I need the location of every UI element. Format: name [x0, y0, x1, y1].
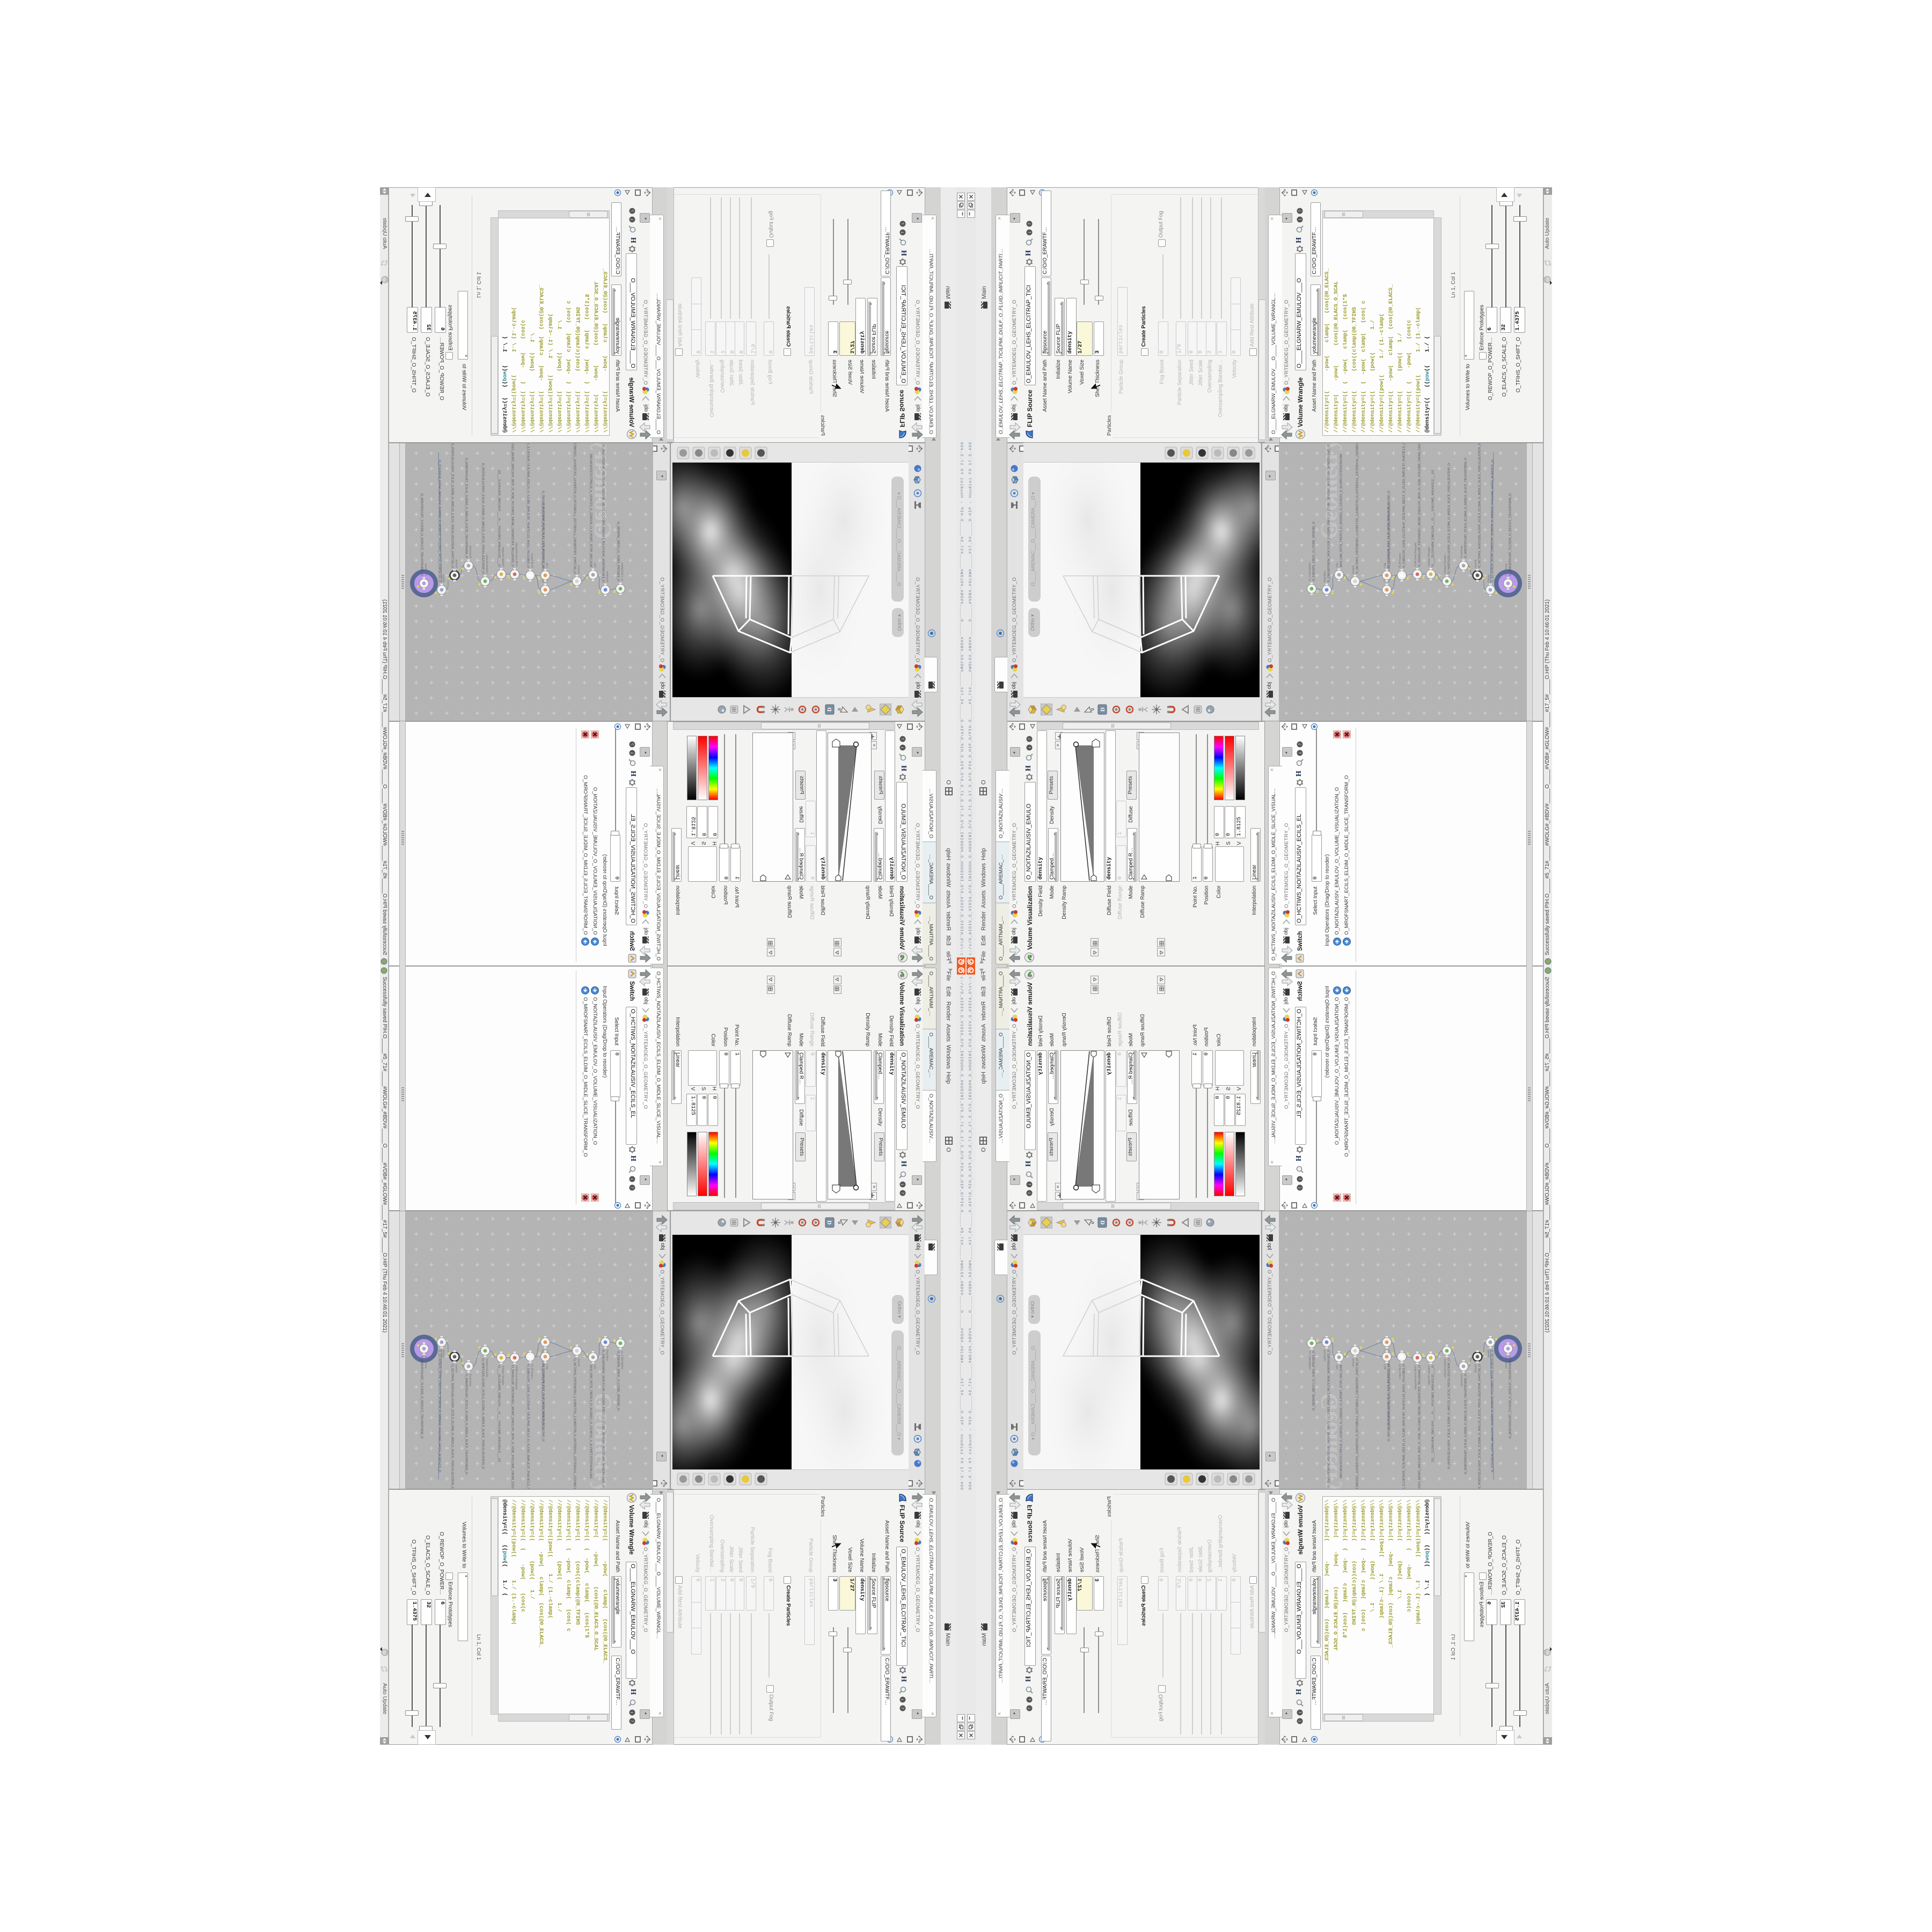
svg-text:O_EREHPS_EBUC_O_CUBE_SPHERE_O: O_EREHPS_EBUC_O_CUBE_SPHERE_O [617, 1351, 620, 1411]
svg-text:ao_CubeSphere: ao_CubeSphere [1308, 562, 1312, 581]
svg-text:?: ? [630, 1187, 634, 1189]
svg-text:O_HCTIWS_YRTEMOEG_LANRETXE_LAN: O_HCTIWS_YRTEMOEG_LANRETXE_LANRETNI_O_IN… [1356, 443, 1359, 574]
svg-text:O_SNOGLOP_YRTEMOEG_MORF_EMULOV: O_SNOGLOP_YRTEMOEG_MORF_EMULOV_BDV_O_VDB… [511, 443, 515, 567]
svg-text:O_NOITAZILAUSIV_ECILS_ELDIM_O_: O_NOITAZILAUSIV_ECILS_ELDIM_O_MIDLE_SLIC… [481, 1358, 485, 1469]
svg-text:Transform: Transform [424, 563, 428, 576]
svg-text:O_HCTIWS_YRTEMOEG_LANRETXE_LAN: O_HCTIWS_YRTEMOEG_LANRETXE_LANRETNI_O_IN… [573, 443, 577, 574]
svg-text:VolumeVisualiz…: VolumeVisualiz… [485, 1358, 488, 1380]
svg-text:ao_CubeSphere: ao_CubeSphere [620, 562, 624, 581]
svg-text:O____ELGNARW_EMULOV___O____VOL: O____ELGNARW_EMULOV___O____VOLUME_WRANGL… [1431, 470, 1435, 567]
svg-text:D: D [1100, 1220, 1106, 1225]
svg-text:O_MROFSNART_TLUSER_O_RESULT_TR: O_MROFSNART_TLUSER_O_RESULT_TRANSFORM_O [1509, 493, 1512, 576]
svg-text:VDB from Polygons: VDB from Polygons [1414, 542, 1417, 567]
svg-text:O_HCTIWS_YRTEMOEG_LANRETXE_LAN: O_HCTIWS_YRTEMOEG_LANRETXE_LANRETNI_O_IN… [573, 1358, 577, 1489]
svg-text:D: D [826, 707, 832, 712]
svg-text:O_MROFSNART_TLUSER_O_RESULT_TR: O_MROFSNART_TLUSER_O_RESULT_TRANSFORM_O [420, 493, 424, 576]
svg-text:Merge: Merge [442, 1350, 445, 1358]
svg-text:VDB from Polygons: VDB from Polygons [515, 542, 518, 567]
svg-text:Clip: Clip [545, 562, 548, 568]
svg-text:Switch: Switch [455, 1364, 458, 1373]
svg-text:D: D [826, 1220, 832, 1225]
svg-text:?: ? [630, 743, 634, 745]
svg-text:Merge: Merge [1487, 1350, 1490, 1358]
svg-text:O_EMARFERIW_NOGYLOP_EREHPS_EBU: O_EMARFERIW_NOGYLOP_EREHPS_EBUC_O_CUBE_S… [1327, 444, 1331, 582]
svg-text:O_ECAFRUS_HTIW_EMULOV_EGREM_O_: O_ECAFRUS_HTIW_EMULOV_EGREM_O_MERGE_VOLU… [1491, 459, 1495, 582]
svg-text:?: ? [1298, 210, 1302, 212]
svg-text:O_ECAFRUS_PILC_O_CLIP_SURFACE_: O_ECAFRUS_PILC_O_CLIP_SURFACE_VOLUME_O [541, 1364, 545, 1441]
svg-text:O_HCTIWS_NOITAZILAUSIV_ECILS_E: O_HCTIWS_NOITAZILAUSIV_ECILS_ELDIM_O_MID… [1478, 1364, 1482, 1489]
svg-text:O_HCTIWS_NOITAZILAUSIV_ECILS_E: O_HCTIWS_NOITAZILAUSIV_ECILS_ELDIM_O_MID… [1478, 443, 1482, 568]
svg-text:File: File [1336, 562, 1339, 567]
svg-text:O_ECAFRUS_PILC_O_CLIP_SURFACE_: O_ECAFRUS_PILC_O_CLIP_SURFACE_VOLUME_O [1387, 491, 1391, 568]
svg-text:Volume Wrangle: Volume Wrangle [501, 546, 504, 567]
svg-text:Transform: Transform [1460, 1374, 1463, 1387]
svg-text:O_MROFSNART_ECILS_ELDIM_O_MIDL: O_MROFSNART_ECILS_ELDIM_O_MIDLE_SLICE_TR… [465, 1374, 469, 1475]
svg-text:i: i [630, 752, 634, 753]
svg-text:O_MROFSNART_TLUSER_O_RESULT_TR: O_MROFSNART_TLUSER_O_RESULT_TRANSFORM_O [420, 1356, 424, 1439]
svg-text:Transform: Transform [469, 545, 472, 558]
svg-text:PolyWire: PolyWire [605, 571, 609, 582]
svg-text:FLIP Source: FLIP Source [530, 1364, 533, 1379]
svg-text:VDB from Polygons: VDB from Polygons [1414, 1365, 1417, 1390]
svg-text:O_ECAFRUS_PILC_O_CLIP_SURFACE_: O_ECAFRUS_PILC_O_CLIP_SURFACE_VOLUME_O [1387, 1364, 1391, 1441]
svg-text:?: ? [1298, 1187, 1302, 1189]
svg-text:i: i [1027, 231, 1032, 233]
svg-text:Transform: Transform [469, 1374, 472, 1387]
svg-text:VolumeVisualiz…: VolumeVisualiz… [485, 552, 488, 574]
svg-text:?: ? [900, 738, 905, 740]
svg-text:O_MROFSNART_ECILS_ELDIM_O_MIDL: O_MROFSNART_ECILS_ELDIM_O_MIDLE_SLICE_TR… [465, 457, 469, 558]
svg-text:Switch: Switch [1474, 1364, 1477, 1373]
svg-text:O_EREHPS_EBUC_O_CUBE_SPHERE_O: O_EREHPS_EBUC_O_CUBE_SPHERE_O [1312, 1351, 1316, 1411]
svg-text:?: ? [630, 1720, 634, 1722]
svg-text:Volume Wrangle: Volume Wrangle [501, 1365, 504, 1386]
svg-text:i: i [1027, 747, 1032, 748]
svg-text:Switch: Switch [455, 559, 458, 568]
svg-text:BU8_OBJ_PETS_TREPLS_O_SO2REG_O: BU8_OBJ_PETS_TREPLS_O_SO2REG_O_GENUS1_0_… [589, 453, 593, 567]
svg-text:FLIP Source: FLIP Source [1399, 553, 1402, 568]
svg-text:O_HCTIWS_NOITAZILAUSIV_ECILS_E: O_HCTIWS_NOITAZILAUSIV_ECILS_ELDIM_O_MID… [451, 1364, 455, 1489]
svg-text:PolyWire: PolyWire [605, 1350, 609, 1361]
svg-text:Transform: Transform [1504, 1356, 1508, 1369]
svg-text:Volume Wrangle: Volume Wrangle [1428, 546, 1431, 567]
svg-text:BU8_OBJ_PETS_TREPLS_O_SO2REG_O: BU8_OBJ_PETS_TREPLS_O_SO2REG_O_GENUS1_0_… [1340, 453, 1343, 567]
svg-text:O_NOITAZILAUSIV_ECILS_ELDIM_O_: O_NOITAZILAUSIV_ECILS_ELDIM_O_MIDLE_SLIC… [1447, 463, 1451, 574]
svg-text:File: File [593, 562, 596, 567]
svg-text:O_EREHPS_EBUC_O_CUBE_SPHERE_O: O_EREHPS_EBUC_O_CUBE_SPHERE_O [617, 521, 620, 581]
svg-text:PolyWire: PolyWire [1323, 571, 1327, 582]
svg-text:?: ? [1298, 1720, 1302, 1722]
svg-text:Switch: Switch [1352, 1358, 1355, 1367]
svg-text:VolumeVisualiz…: VolumeVisualiz… [1444, 1358, 1447, 1380]
svg-text:O_EREHPS_EBUC_O_CUBE_SPHERE_O: O_EREHPS_EBUC_O_CUBE_SPHERE_O [1312, 521, 1316, 581]
svg-text:O_EMULOV_LEHS_ELCITRAP_TICILPM: O_EMULOV_LEHS_ELCITRAP_TICILPMI_DIULF_O_… [1402, 443, 1406, 568]
svg-text:FLIP Source: FLIP Source [1399, 1364, 1402, 1379]
svg-text:Merge: Merge [442, 574, 445, 582]
svg-text:O_EMARFERIW_NOGYLOP_EREHPS_EBU: O_EMARFERIW_NOGYLOP_EREHPS_EBUC_O_CUBE_S… [602, 444, 605, 582]
svg-text:Switch: Switch [1352, 565, 1355, 574]
svg-text:i: i [900, 231, 905, 233]
svg-text:O_NOITAZILAUSIV_ECILS_ELDIM_O_: O_NOITAZILAUSIV_ECILS_ELDIM_O_MIDLE_SLIC… [1447, 1358, 1451, 1469]
svg-text:?: ? [900, 1192, 905, 1194]
svg-text:O_SNOGLOP_YRTEMOEG_MORF_EMULOV: O_SNOGLOP_YRTEMOEG_MORF_EMULOV_BDV_O_VDB… [511, 1365, 515, 1489]
svg-text:O_EMARFERIW_NOGYLOP_EREHPS_EBU: O_EMARFERIW_NOGYLOP_EREHPS_EBUC_O_CUBE_S… [602, 1350, 605, 1488]
svg-text:O____ELGNARW_EMULOV___O____VOL: O____ELGNARW_EMULOV___O____VOLUME_WRANGL… [1431, 1365, 1435, 1462]
svg-text:Clip: Clip [1384, 562, 1387, 568]
svg-text:O_EMULOV_LEHS_ELCITRAP_TICILPM: O_EMULOV_LEHS_ELCITRAP_TICILPMI_DIULF_O_… [526, 1364, 530, 1489]
svg-text:i: i [1298, 218, 1302, 220]
svg-text:O_EMULOV_LEHS_ELCITRAP_TICILPM: O_EMULOV_LEHS_ELCITRAP_TICILPMI_DIULF_O_… [526, 443, 530, 568]
svg-text:Volume Wrangle: Volume Wrangle [1428, 1365, 1431, 1386]
svg-text:Transform: Transform [424, 1356, 428, 1369]
svg-text:?: ? [900, 223, 905, 225]
svg-text:O_EMARFERIW_NOGYLOP_EREHPS_EBU: O_EMARFERIW_NOGYLOP_EREHPS_EBUC_O_CUBE_S… [1327, 1350, 1331, 1488]
svg-text:?: ? [1298, 743, 1302, 745]
svg-text:O_MROFSNART_ECILS_ELDIM_O_MIDL: O_MROFSNART_ECILS_ELDIM_O_MIDLE_SLICE_TR… [1464, 1374, 1468, 1475]
svg-text:Clip: Clip [545, 1364, 548, 1370]
svg-text:PolyWire: PolyWire [1323, 1350, 1327, 1361]
svg-text:Merge: Merge [1487, 574, 1490, 582]
svg-text:O_ECAFRUS_HTIW_EMULOV_EGREM_O_: O_ECAFRUS_HTIW_EMULOV_EGREM_O_MERGE_VOLU… [438, 1350, 442, 1473]
svg-text:O_MROFSNART_TLUSER_O_RESULT_TR: O_MROFSNART_TLUSER_O_RESULT_TRANSFORM_O [1509, 1356, 1512, 1439]
svg-text:BU8_OBJ_PETS_TREPLS_O_SO2REG_O: BU8_OBJ_PETS_TREPLS_O_SO2REG_O_GENUS1_0_… [589, 1365, 593, 1479]
svg-text:File: File [593, 1365, 596, 1370]
svg-text:?: ? [1027, 223, 1032, 225]
svg-text:O____ELGNARW_EMULOV___O____VOL: O____ELGNARW_EMULOV___O____VOLUME_WRANGL… [497, 470, 501, 567]
svg-text:?: ? [630, 210, 634, 212]
svg-text:?: ? [1027, 738, 1032, 740]
svg-text:O____ELGNARW_EMULOV___O____VOL: O____ELGNARW_EMULOV___O____VOLUME_WRANGL… [497, 1365, 501, 1462]
svg-text:BU8_OBJ_PETS_TREPLS_O_SO2REG_O: BU8_OBJ_PETS_TREPLS_O_SO2REG_O_GENUS1_0_… [1340, 1365, 1343, 1479]
svg-text:?: ? [900, 1707, 905, 1709]
svg-text:O_SNOGLOP_YRTEMOEG_MORF_EMULOV: O_SNOGLOP_YRTEMOEG_MORF_EMULOV_BDV_O_VDB… [1418, 1365, 1422, 1489]
svg-text:i: i [900, 747, 905, 748]
svg-text:O_HCTIWS_YRTEMOEG_LANRETXE_LAN: O_HCTIWS_YRTEMOEG_LANRETXE_LANRETNI_O_IN… [1356, 1358, 1359, 1489]
svg-text:O_MROFSNART_ECILS_ELDIM_O_MIDL: O_MROFSNART_ECILS_ELDIM_O_MIDLE_SLICE_TR… [1464, 457, 1468, 558]
svg-text:O_ECAFRUS_HTIW_EMULOV_EGREM_O_: O_ECAFRUS_HTIW_EMULOV_EGREM_O_MERGE_VOLU… [1491, 1350, 1495, 1473]
svg-text:File: File [1336, 1365, 1339, 1370]
svg-text:Clip: Clip [1384, 1364, 1387, 1370]
svg-text:D: D [1100, 707, 1106, 712]
svg-text:Switch: Switch [1474, 559, 1477, 568]
svg-text:O_NOITAZILAUSIV_ECILS_ELDIM_O_: O_NOITAZILAUSIV_ECILS_ELDIM_O_MIDLE_SLIC… [481, 463, 485, 574]
svg-text:O_EMULOV_LEHS_ELCITRAP_TICILPM: O_EMULOV_LEHS_ELCITRAP_TICILPMI_DIULF_O_… [1402, 1364, 1406, 1489]
svg-text:ao_CubeSphere: ao_CubeSphere [1308, 1351, 1312, 1370]
svg-text:O_ECAFRUS_HTIW_EMULOV_EGREM_O_: O_ECAFRUS_HTIW_EMULOV_EGREM_O_MERGE_VOLU… [438, 459, 442, 582]
svg-text:O_ECAFRUS_PILC_O_CLIP_SURFACE_: O_ECAFRUS_PILC_O_CLIP_SURFACE_VOLUME_O [541, 491, 545, 568]
svg-text:Switch: Switch [577, 1358, 580, 1367]
svg-text:ao_CubeSphere: ao_CubeSphere [620, 1351, 624, 1370]
svg-text:VDB from Polygons: VDB from Polygons [515, 1365, 518, 1390]
svg-text:Switch: Switch [577, 565, 580, 574]
svg-text:i: i [630, 218, 634, 220]
svg-text:FLIP Source: FLIP Source [530, 553, 533, 568]
svg-text:Transform: Transform [1460, 545, 1463, 558]
svg-text:O_SNOGLOP_YRTEMOEG_MORF_EMULOV: O_SNOGLOP_YRTEMOEG_MORF_EMULOV_BDV_O_VDB… [1418, 443, 1422, 567]
svg-text:?: ? [1027, 1707, 1032, 1709]
svg-text:O_HCTIWS_NOITAZILAUSIV_ECILS_E: O_HCTIWS_NOITAZILAUSIV_ECILS_ELDIM_O_MID… [451, 443, 455, 568]
svg-text:Transform: Transform [1504, 563, 1508, 576]
svg-text:i: i [1298, 752, 1302, 753]
svg-text:VolumeVisualiz…: VolumeVisualiz… [1444, 552, 1447, 574]
svg-text:?: ? [1027, 1192, 1032, 1194]
